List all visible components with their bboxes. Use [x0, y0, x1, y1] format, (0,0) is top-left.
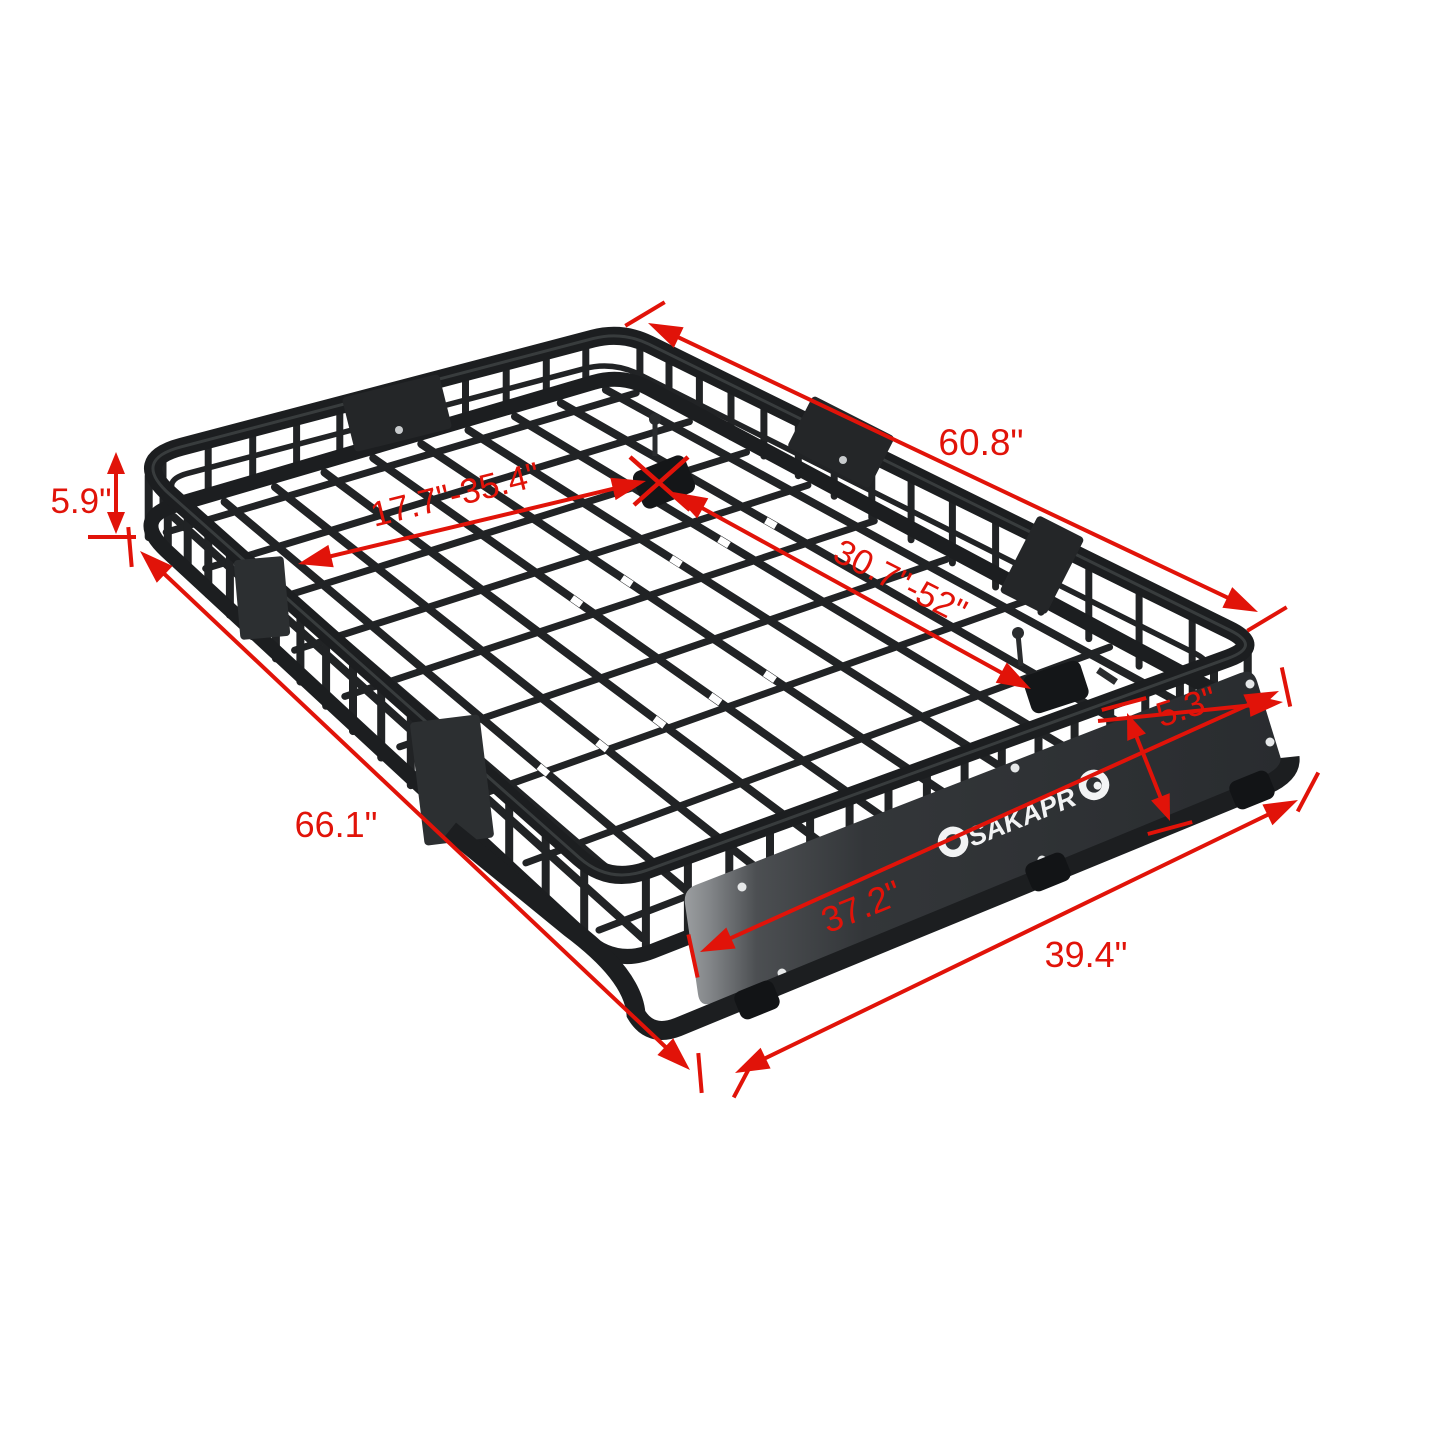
svg-text:5.9": 5.9" — [50, 482, 111, 521]
svg-text:66.1": 66.1" — [295, 804, 378, 845]
svg-text:39.4": 39.4" — [1045, 934, 1128, 975]
svg-text:60.8": 60.8" — [938, 422, 1023, 463]
